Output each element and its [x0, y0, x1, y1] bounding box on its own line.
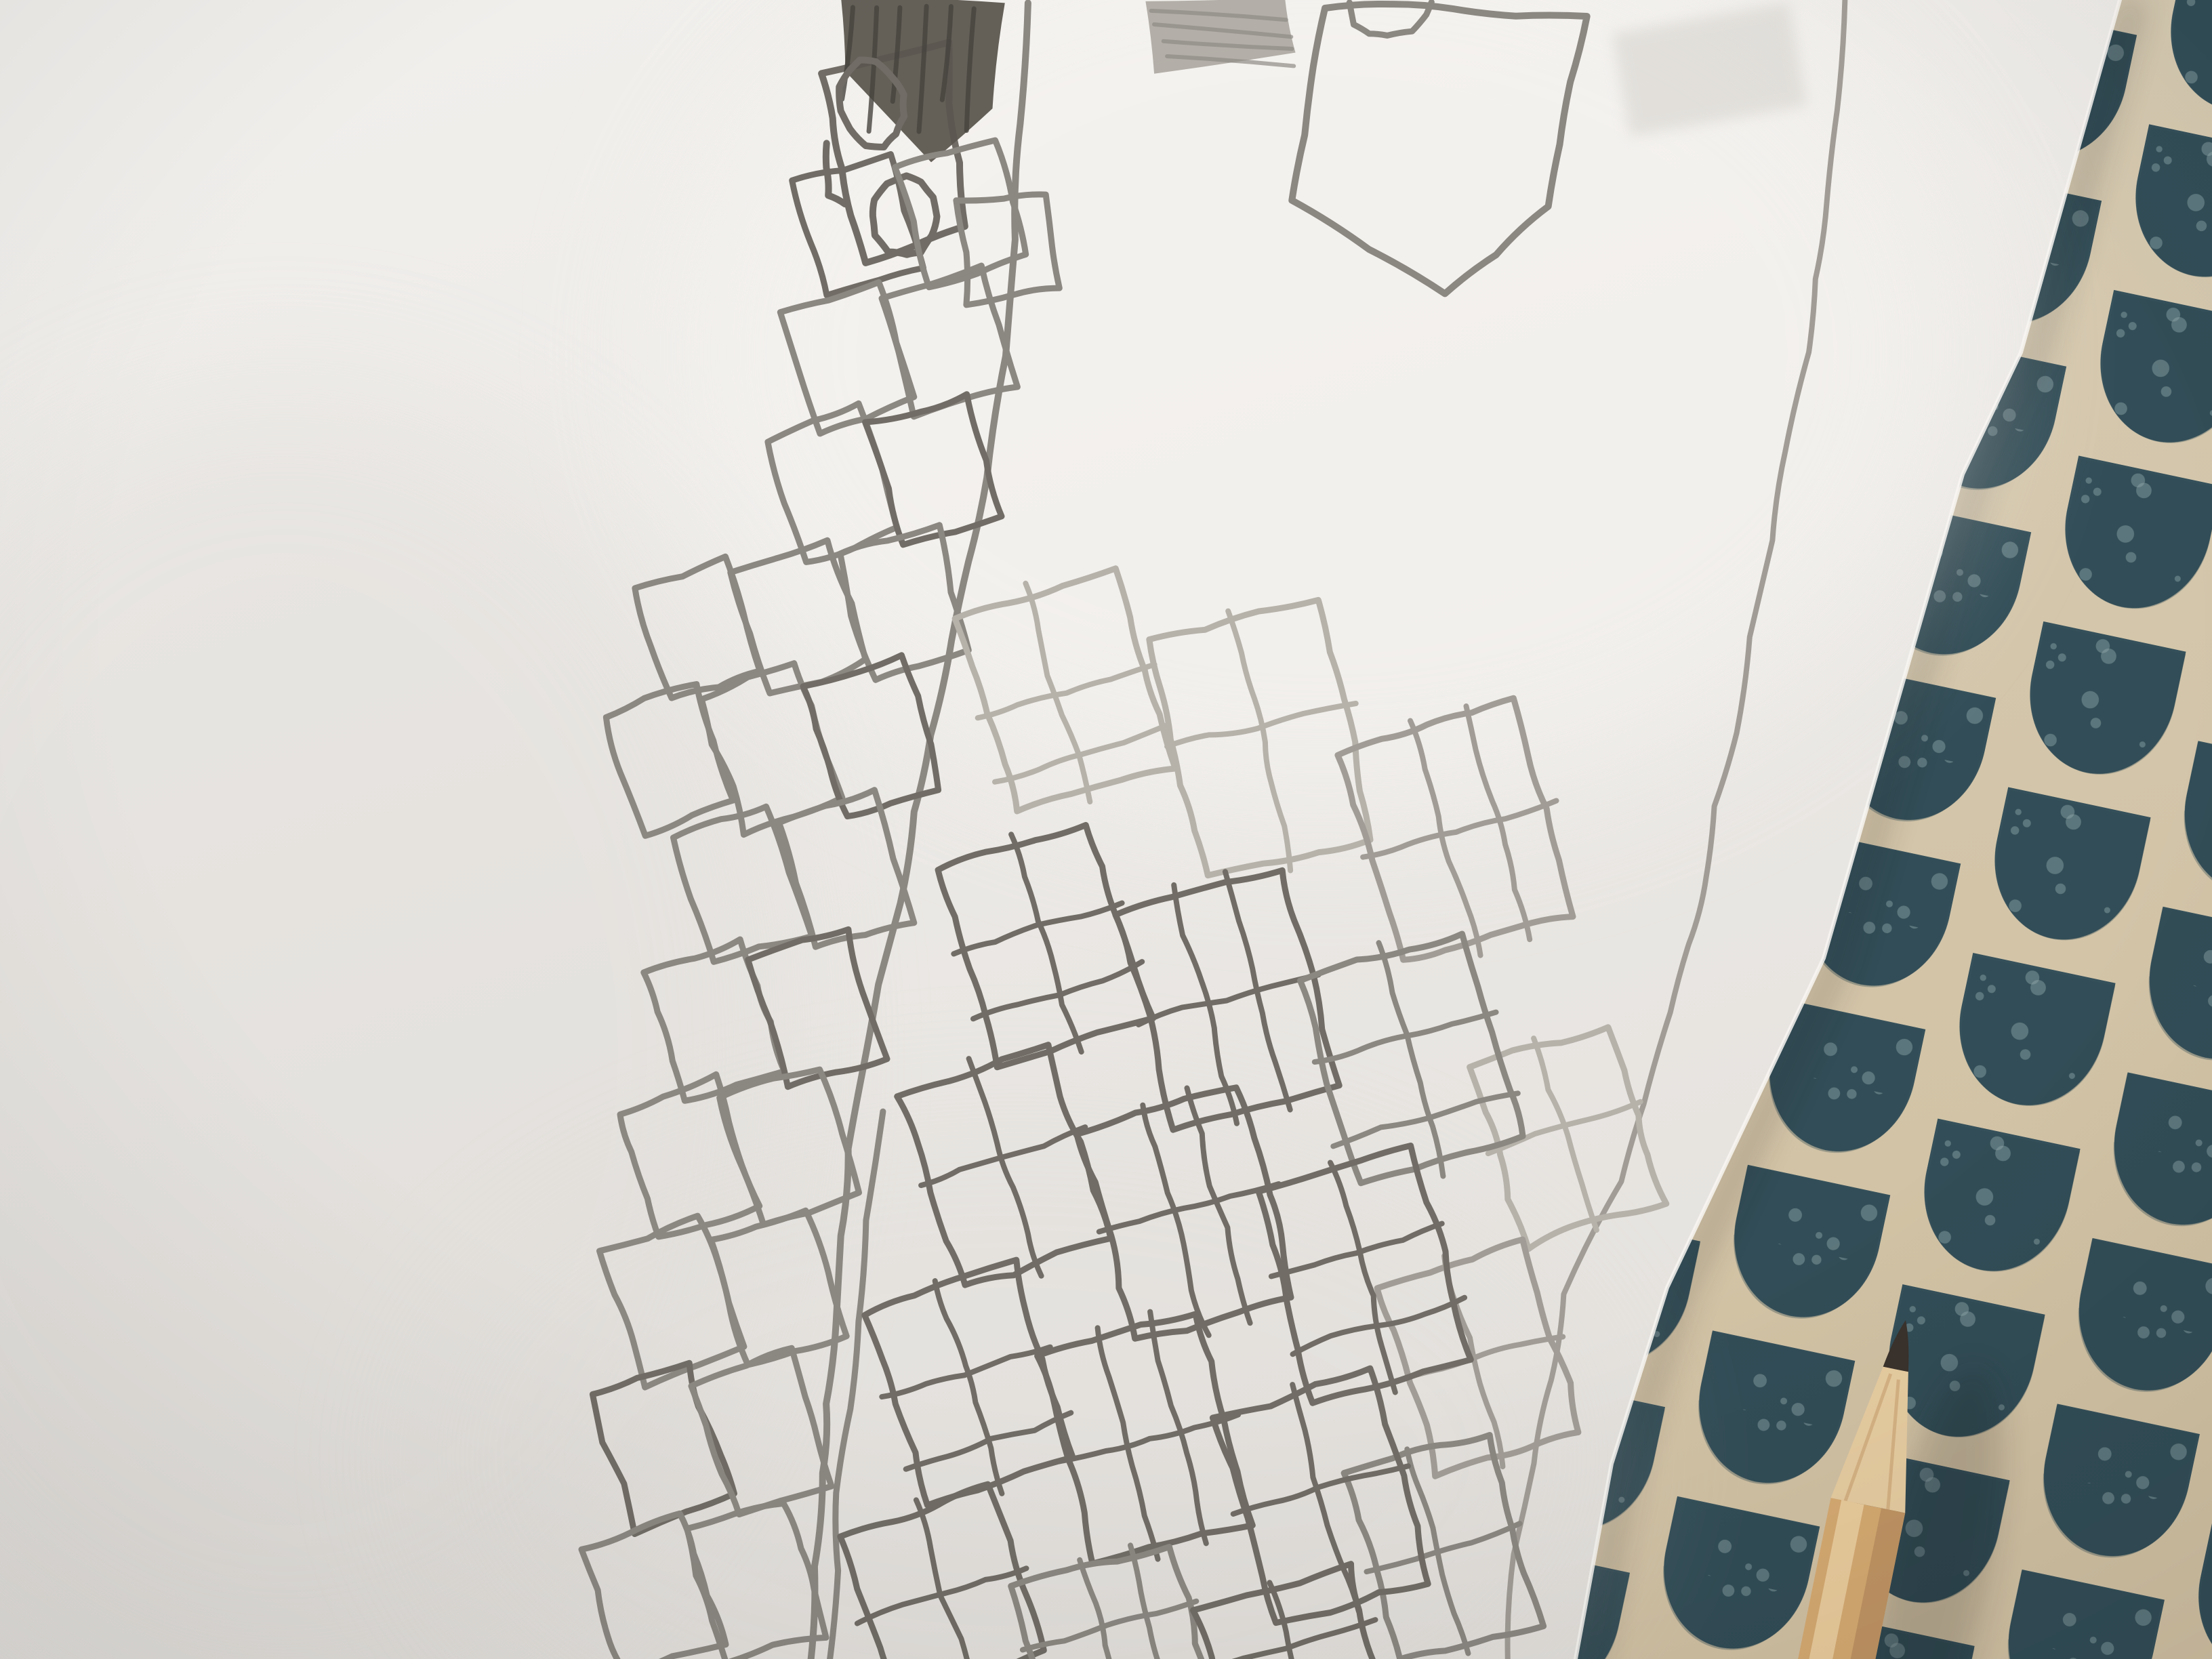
scene-svg: [0, 0, 2212, 1659]
photo-of-childs-drawing: [0, 0, 2212, 1659]
photo-vignette: [0, 0, 2212, 1659]
